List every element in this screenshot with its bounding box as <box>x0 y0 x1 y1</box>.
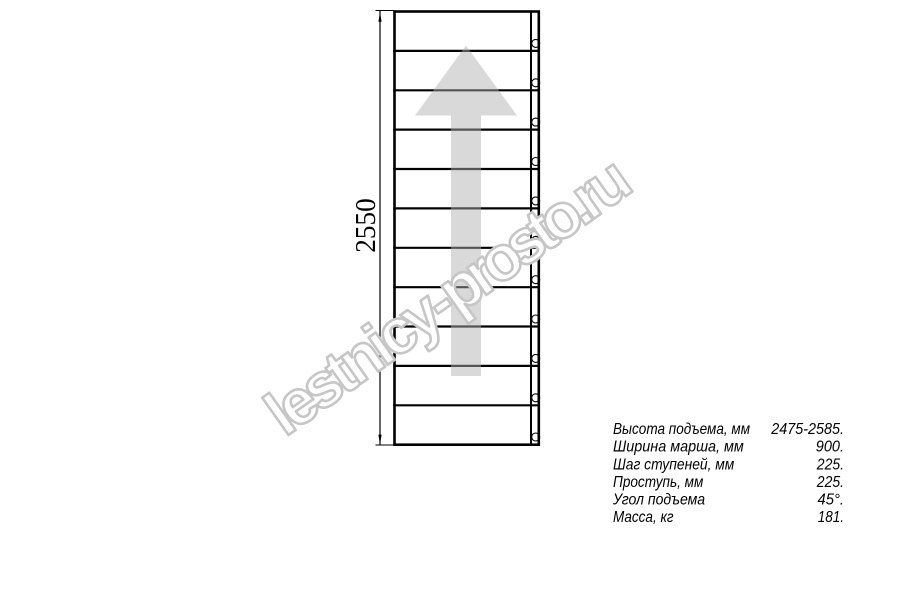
svg-text:Шаг ступеней, мм: Шаг ступеней, мм <box>613 456 734 473</box>
svg-text:900.: 900. <box>816 439 844 456</box>
svg-text:Проступь, мм: Проступь, мм <box>613 474 703 491</box>
svg-text:Угол подъема: Угол подъема <box>612 492 705 509</box>
svg-text:Масса, кг: Масса, кг <box>613 509 674 526</box>
svg-text:181.: 181. <box>818 509 844 526</box>
svg-text:45°.: 45°. <box>818 492 845 509</box>
svg-text:Ширина марша, мм: Ширина марша, мм <box>613 439 744 456</box>
svg-text:225.: 225. <box>816 474 844 491</box>
svg-text:2550: 2550 <box>350 198 382 253</box>
svg-text:2475-2585.: 2475-2585. <box>770 421 844 438</box>
svg-text:Высота подъема, мм: Высота подъема, мм <box>613 421 750 438</box>
svg-text:225.: 225. <box>816 456 844 473</box>
